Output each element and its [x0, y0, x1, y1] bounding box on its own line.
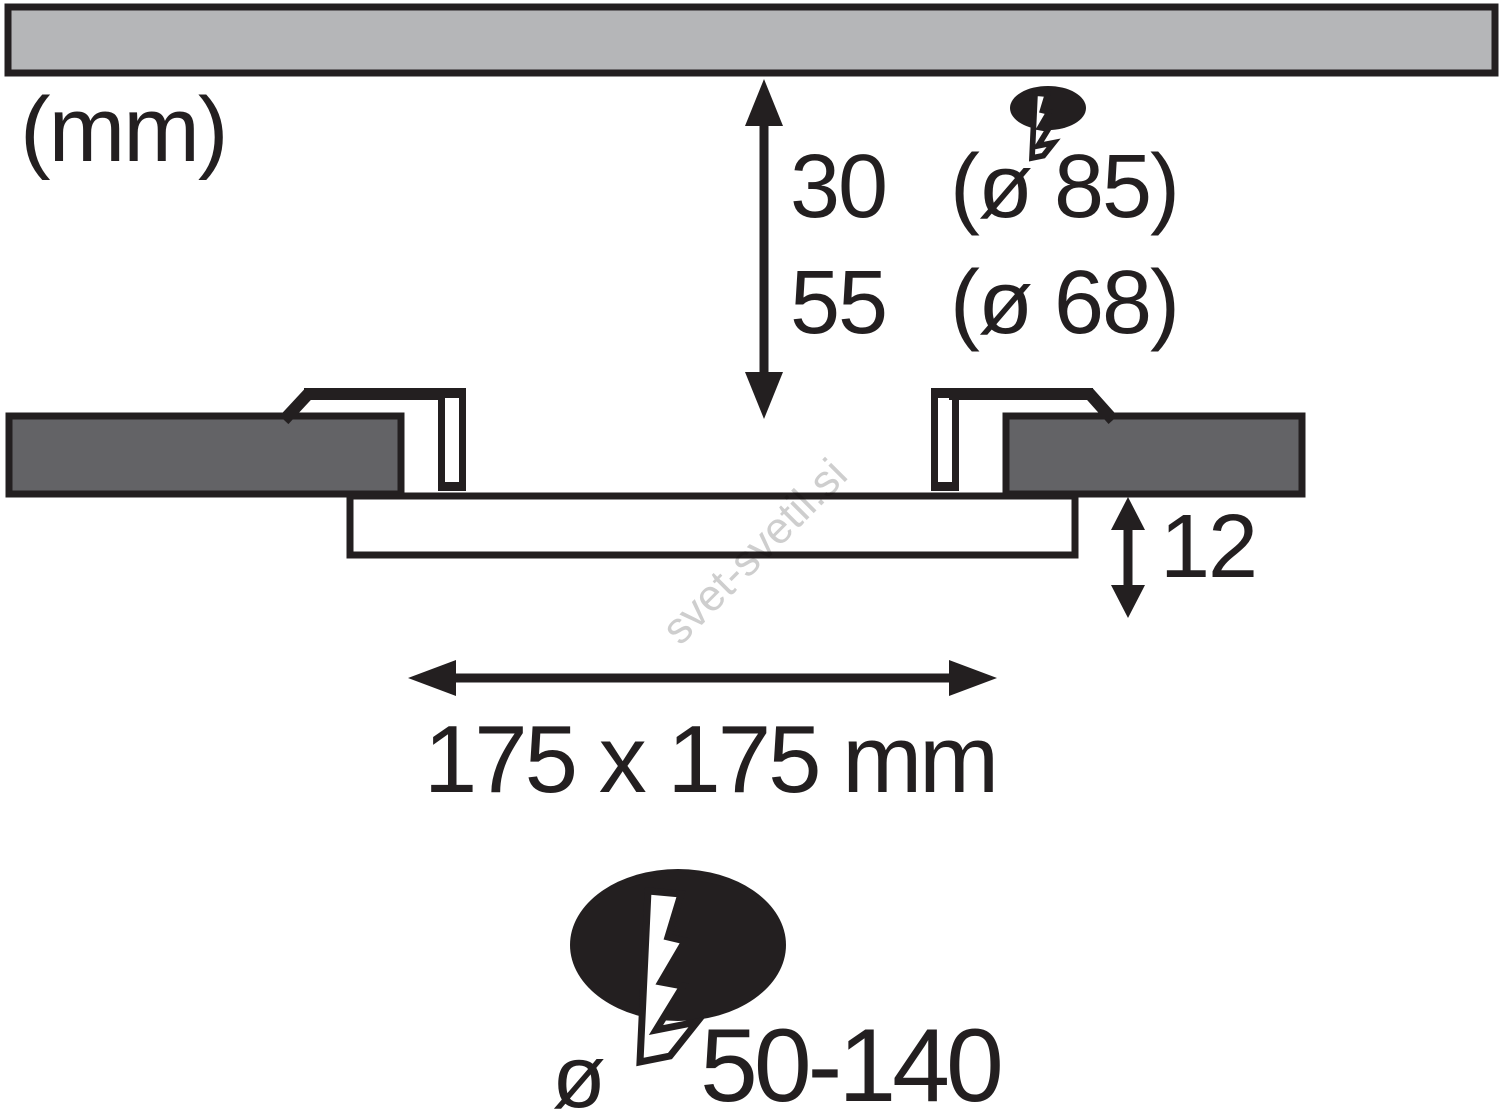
panel-height-arrow-icon [1111, 497, 1145, 618]
dimension-diagram: (mm) 30(ø 85) 55(ø 68) 12 175 x 175 mm ø… [0, 0, 1507, 1110]
depth-dimension-row-1: 30(ø 85) [790, 142, 1178, 232]
recess-depth-arrow-icon [745, 79, 783, 419]
arrow-right-icon [949, 660, 997, 696]
units-label: (mm) [20, 84, 227, 176]
ceiling-cut-block-right [1006, 416, 1302, 494]
cutout-size-label: 175 x 175 mm [340, 712, 1080, 808]
diameter-symbol: ø [552, 1033, 604, 1110]
depth-detail-1: (ø 85) [950, 137, 1178, 237]
arrow-up-icon [745, 79, 783, 126]
arrow-left-icon [408, 660, 456, 696]
clip-channel-slot [445, 398, 459, 482]
arrow-up-icon [1111, 497, 1145, 530]
depth-value-2: 55 [790, 258, 950, 348]
cable-cutout-range-label: 50-140 [700, 1014, 1000, 1110]
depth-dimension-row-2: 55(ø 68) [790, 258, 1178, 348]
cutout-width-arrow-icon [408, 660, 997, 696]
panel-frame [350, 496, 1075, 555]
depth-detail-2: (ø 68) [950, 253, 1178, 353]
depth-value-1: 30 [790, 142, 950, 232]
ceiling-cut-block-left [9, 416, 401, 494]
arrow-down-icon [1111, 585, 1145, 618]
ceiling-bar [8, 7, 1495, 73]
arrow-down-icon [745, 372, 783, 419]
clip-channel-slot [938, 398, 952, 482]
panel-height-label: 12 [1160, 502, 1256, 592]
